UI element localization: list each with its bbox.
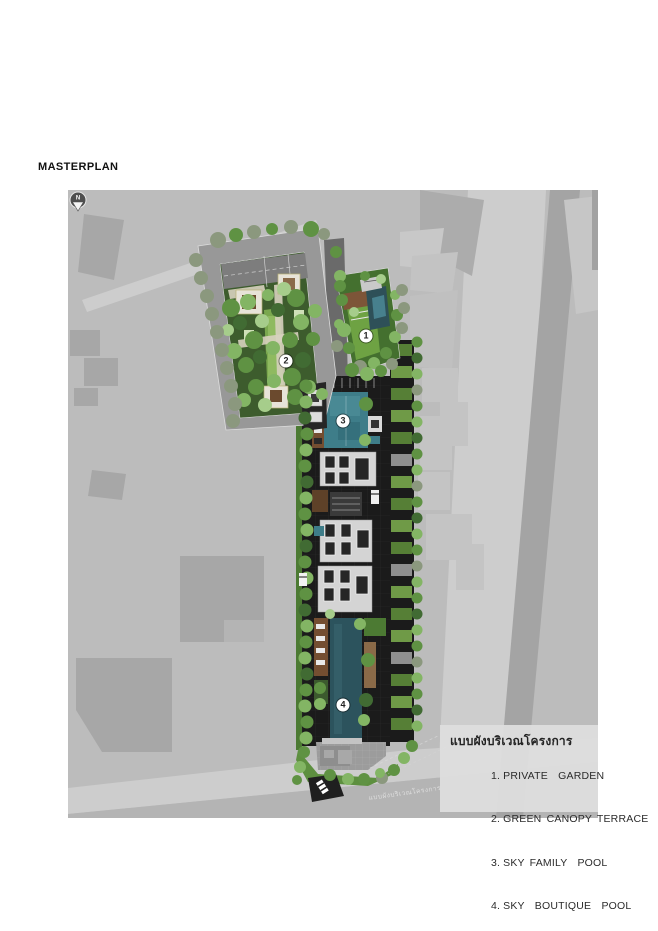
car <box>371 490 379 504</box>
marker-sky-family-pool: 3 <box>337 415 350 428</box>
siteplan-rendering <box>68 190 598 818</box>
legend-item: 1.PRIVATE GARDEN <box>450 754 598 798</box>
car <box>299 573 307 586</box>
page-title: MASTERPLAN <box>38 161 118 173</box>
legend-box: แบบผังบริเวณโครงการ 1.PRIVATE GARDEN 2.G… <box>440 725 598 812</box>
svg-text:N: N <box>76 196 80 202</box>
tower-core-structures <box>312 452 379 612</box>
marker-green-canopy-terrace: 2 <box>280 355 293 368</box>
legend-heading: แบบผังบริเวณโครงการ <box>450 732 598 751</box>
legend-item: 2.GREEN CANOPY TERRACE <box>450 798 598 842</box>
north-compass-icon: N <box>68 190 88 216</box>
parking-strips <box>390 340 414 742</box>
legend-item: 4.SKY BOUTIQUE POOL <box>450 885 598 929</box>
masterplan-image: 1 2 3 4 N แบบผังบริเวณโครงการ แบบผังบริเ… <box>68 190 598 818</box>
marker-sky-boutique-pool: 4 <box>337 699 350 712</box>
marker-private-garden: 1 <box>360 330 373 343</box>
brochure-page: MASTERPLAN <box>0 0 658 931</box>
legend-item: 3.SKY FAMILY POOL <box>450 841 598 885</box>
